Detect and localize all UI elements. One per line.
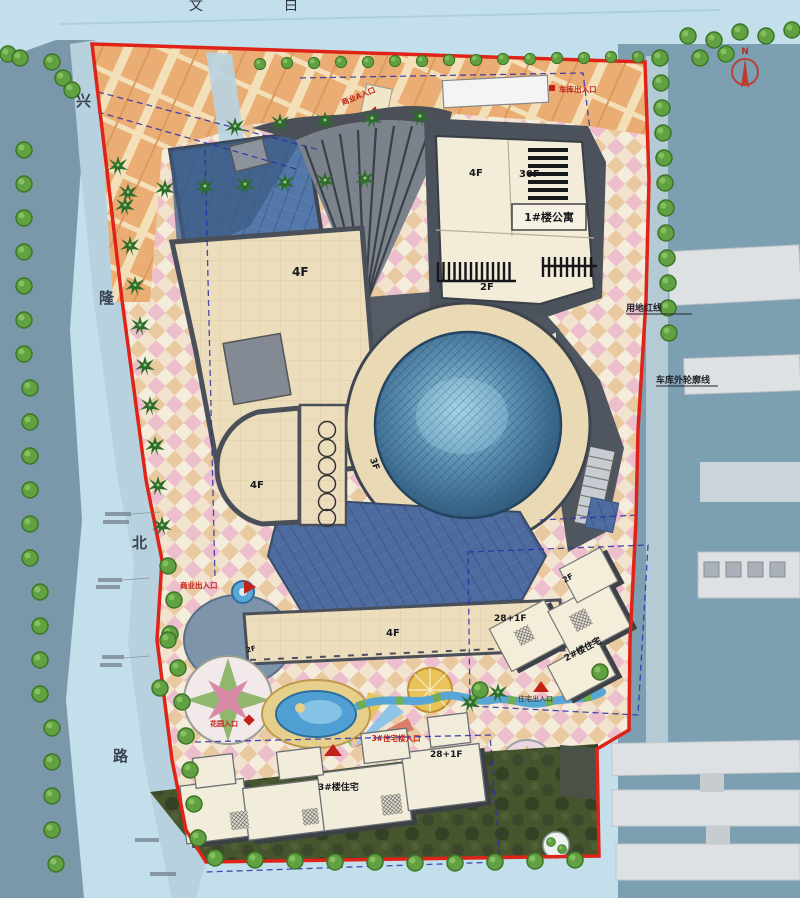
label-res3-floors: 28+1F — [430, 750, 462, 760]
res3-core-hatch-3 — [380, 793, 402, 815]
sun-plaza — [408, 668, 452, 712]
label-residence-entrance: 住宅出入口 — [518, 694, 553, 703]
label-ne-4f: 4F — [469, 168, 483, 179]
city-band-3 — [700, 462, 800, 502]
top-partial-glyph-2: 白 — [284, 0, 298, 14]
road-char-2: 隆 — [99, 289, 115, 307]
label-bar-4f: 4F — [386, 628, 400, 639]
compass-n-label: N — [741, 47, 749, 57]
res3-core-hatch-2 — [302, 808, 320, 826]
city-band-2 — [684, 355, 800, 395]
city-band-6 — [612, 790, 800, 826]
res3-core-hatch-1 — [229, 810, 249, 830]
label-30f: 30F — [519, 169, 540, 180]
city-connector-1 — [700, 774, 724, 792]
road-char-4: 路 — [113, 747, 129, 765]
label-redline: 用地红线 — [625, 302, 662, 314]
label-garden-entrance: 花园入口 — [210, 719, 238, 728]
roof-plant-block — [223, 333, 291, 404]
master-plan-drawing: 4F 1#楼公寓 4F 30F 2F 3F 4F 4F 2F — [0, 0, 800, 898]
city-band-7 — [616, 844, 800, 880]
site-plan-scan: 4F 1#楼公寓 4F 30F 2F 3F 4F 4F 2F — [0, 0, 800, 898]
comb-hatch-left — [438, 262, 516, 282]
label-west-entrance: 商业出入口 — [180, 580, 218, 590]
green-block-se — [560, 745, 598, 800]
label-res3-name: 3#楼住宅 — [318, 781, 359, 793]
garden-pool — [262, 680, 370, 748]
city-connector-2 — [706, 826, 730, 844]
garage-entrance-dot — [549, 85, 555, 91]
label-wing-4f: 4F — [250, 480, 264, 491]
dome — [375, 332, 561, 518]
label-res2-floors: 28+1F — [494, 614, 526, 624]
small-plaza-circle — [543, 832, 569, 858]
city-band-5 — [612, 740, 800, 775]
city-band-1 — [667, 245, 800, 306]
windrose-medallion — [184, 656, 272, 744]
label-ne-2f: 2F — [480, 282, 494, 293]
road-char-1: 兴 — [76, 92, 91, 110]
label-apt1: 1#楼公寓 — [524, 210, 574, 224]
road-char-3: 北 — [132, 534, 147, 552]
label-garage-entrance: 车库出入口 — [559, 84, 597, 94]
label-main-4f: 4F — [292, 265, 309, 279]
garage-ramp — [442, 75, 548, 107]
stair-canopy — [585, 497, 619, 532]
label-garage-outline: 车库外轮廓线 — [656, 374, 710, 386]
top-partial-glyph-1: 文 — [189, 0, 203, 14]
